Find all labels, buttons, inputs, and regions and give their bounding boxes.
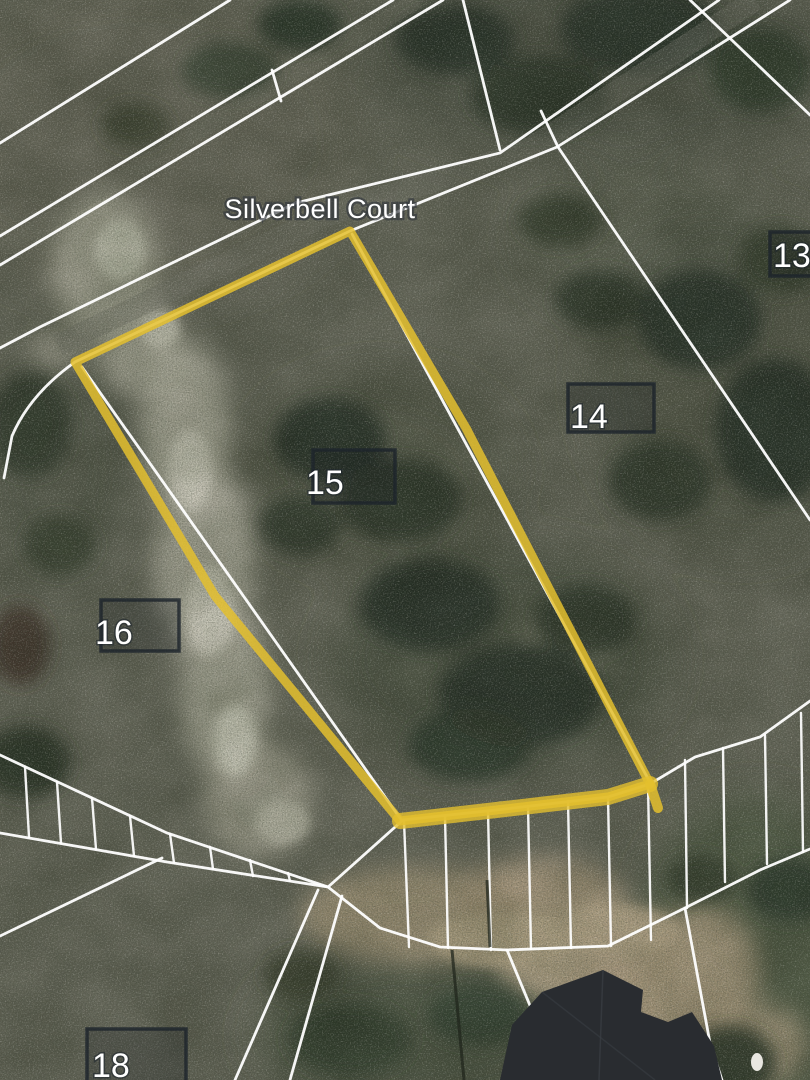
lot-marker-15[interactable]: 15 xyxy=(306,450,395,503)
map-canvas[interactable]: Silverbell Court 13 14 15 16 18 xyxy=(0,0,810,1080)
lot-number-label: 18 xyxy=(92,1047,130,1080)
street-label: Silverbell Court xyxy=(224,194,415,224)
lot-number-label: 16 xyxy=(95,614,133,652)
lot-number-label: 13 xyxy=(773,237,810,275)
satellite-map[interactable]: Silverbell Court 13 14 15 16 18 xyxy=(0,0,810,1080)
lot-marker-18[interactable]: 18 xyxy=(87,1029,186,1080)
lot-marker-14[interactable]: 14 xyxy=(568,384,654,436)
lot-number-label: 15 xyxy=(306,464,344,502)
lot-marker-16[interactable]: 16 xyxy=(95,600,179,652)
lot-marker-13[interactable]: 13 xyxy=(770,232,810,276)
white-debris xyxy=(751,1053,763,1071)
lot-number-label: 14 xyxy=(570,398,608,436)
